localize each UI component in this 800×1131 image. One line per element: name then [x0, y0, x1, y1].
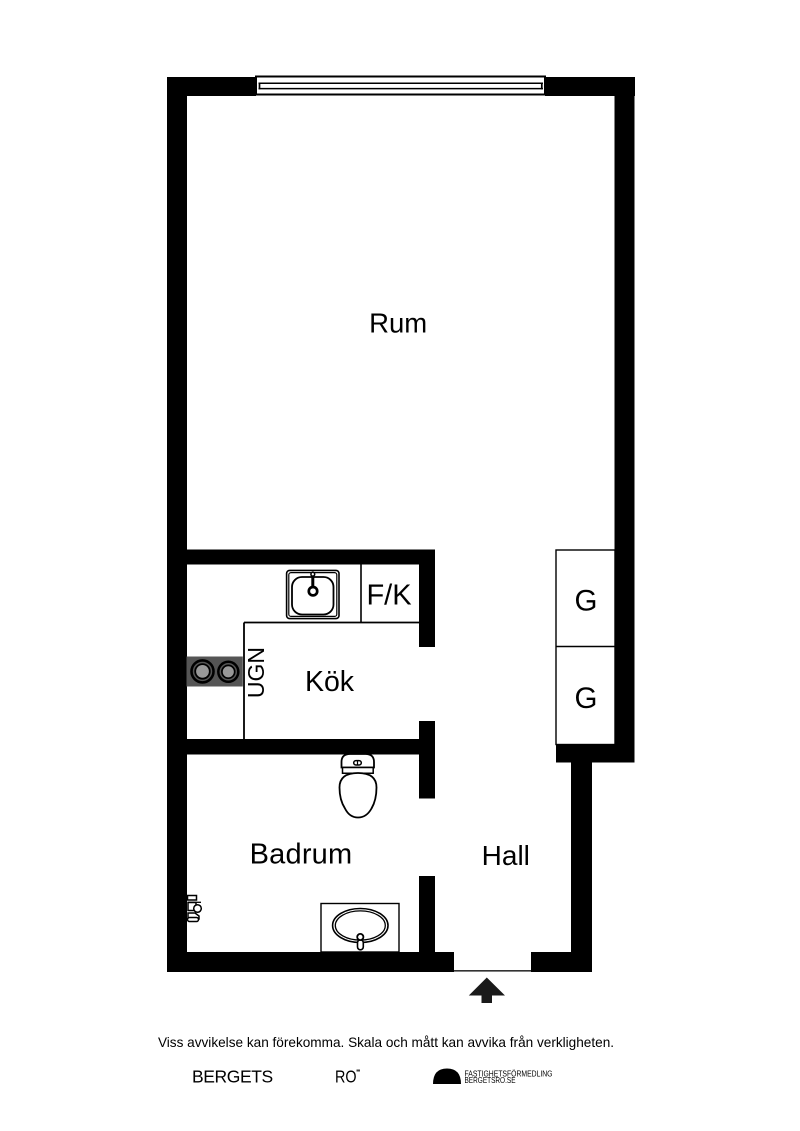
svg-text:Badrum: Badrum: [250, 839, 353, 871]
svg-text:Hall: Hall: [482, 840, 530, 871]
svg-text:BERGETS: BERGETS: [192, 1067, 273, 1087]
svg-text:Rum: Rum: [369, 308, 427, 339]
svg-text:BERGETSRO.SE: BERGETSRO.SE: [465, 1076, 516, 1085]
svg-text:Viss avvikelse kan förekomma.: Viss avvikelse kan förekomma. Skala och …: [158, 1035, 614, 1050]
svg-text:RO: RO: [335, 1068, 357, 1087]
svg-text:G: G: [575, 682, 598, 715]
svg-text:UGN: UGN: [243, 647, 269, 698]
svg-text:Kök: Kök: [305, 666, 355, 698]
svg-text:F/K: F/K: [366, 580, 412, 612]
svg-text:G: G: [575, 584, 598, 617]
